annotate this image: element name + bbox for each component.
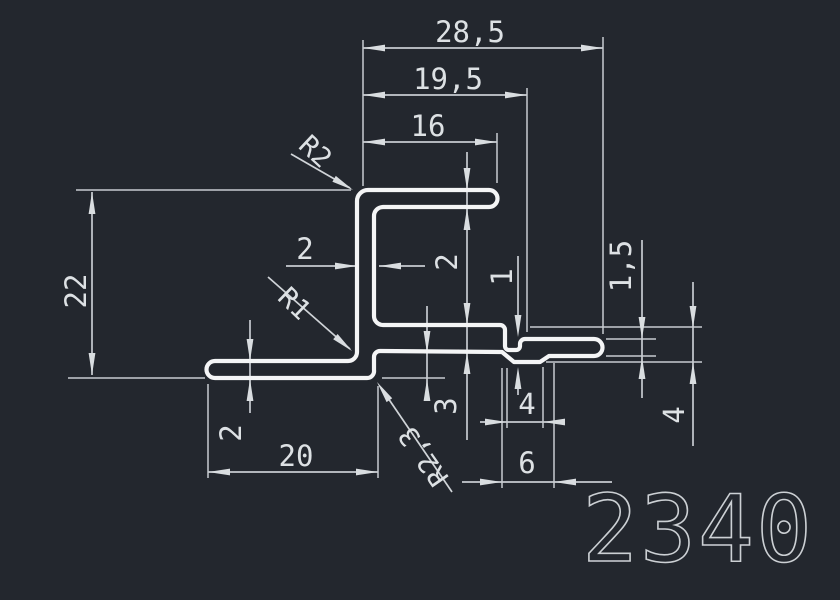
radius-top-corner-label: R2 — [293, 130, 338, 175]
dim-upper-width-label: 19,5 — [413, 62, 483, 96]
leader-radius-top-corner: R2 — [291, 130, 353, 190]
dim-bottom-flange-thickness-label: 2 — [214, 424, 248, 441]
profile-outline — [207, 190, 603, 378]
dim-end-step-height-label: 4 — [657, 406, 691, 423]
dim-top-flange-thickness-label: 2 — [430, 253, 464, 270]
dim-overall-height-label: 22 — [59, 274, 93, 309]
leader-radius-bottom-inner: R1 — [268, 277, 352, 351]
dim-bottom-flange-length: 20 — [208, 439, 378, 475]
dim-overall-width-label: 28,5 — [435, 15, 505, 49]
dim-mid-flange-thickness-label: 3 — [429, 397, 463, 414]
dim-end-flange-thickness: 1,5 — [604, 240, 645, 398]
dim-end-step-height: 4 — [657, 282, 696, 446]
dim-web-thickness-label: 2 — [296, 232, 313, 266]
dim-top-flange-length: 16 — [363, 109, 497, 145]
dim-groove-offset-label: 1 — [485, 268, 519, 285]
dim-bottom-flange-thickness: 2 — [214, 320, 253, 442]
cad-drawing-canvas: 28,5 19,5 16 22 2 2 3 — [0, 0, 840, 600]
radius-bottom-outer-label: R2,3 — [393, 420, 456, 491]
part-number: 2340 — [582, 475, 814, 583]
dim-bottom-flange-length-label: 20 — [279, 439, 314, 473]
dim-top-flange-thickness: 2 3 — [429, 152, 470, 440]
dim-upper-width: 19,5 — [363, 62, 527, 98]
dim-overall-height: 22 — [59, 192, 95, 375]
dim-notch-span-label: 6 — [518, 446, 535, 480]
dim-notch-width-label: 4 — [518, 387, 535, 421]
radius-bottom-inner-label: R1 — [272, 282, 317, 327]
profile-drawing: 28,5 19,5 16 22 2 2 3 — [0, 0, 840, 600]
dim-overall-width: 28,5 — [363, 15, 603, 51]
dim-end-flange-thickness-label: 1,5 — [604, 240, 638, 292]
dim-notch-width: 4 — [480, 387, 565, 425]
dim-top-flange-length-label: 16 — [411, 109, 446, 143]
